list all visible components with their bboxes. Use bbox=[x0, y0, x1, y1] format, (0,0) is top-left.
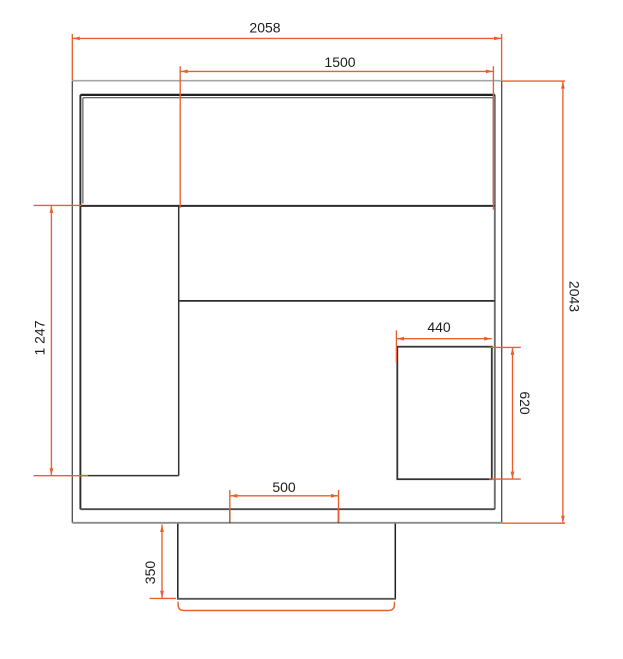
svg-text:500: 500 bbox=[272, 479, 296, 495]
svg-text:440: 440 bbox=[427, 319, 451, 335]
svg-text:2043: 2043 bbox=[567, 281, 583, 312]
svg-text:620: 620 bbox=[517, 391, 533, 415]
svg-text:1500: 1500 bbox=[324, 54, 355, 70]
svg-text:2058: 2058 bbox=[249, 20, 280, 36]
svg-text:350: 350 bbox=[142, 561, 158, 585]
svg-text:1 247: 1 247 bbox=[31, 320, 47, 355]
